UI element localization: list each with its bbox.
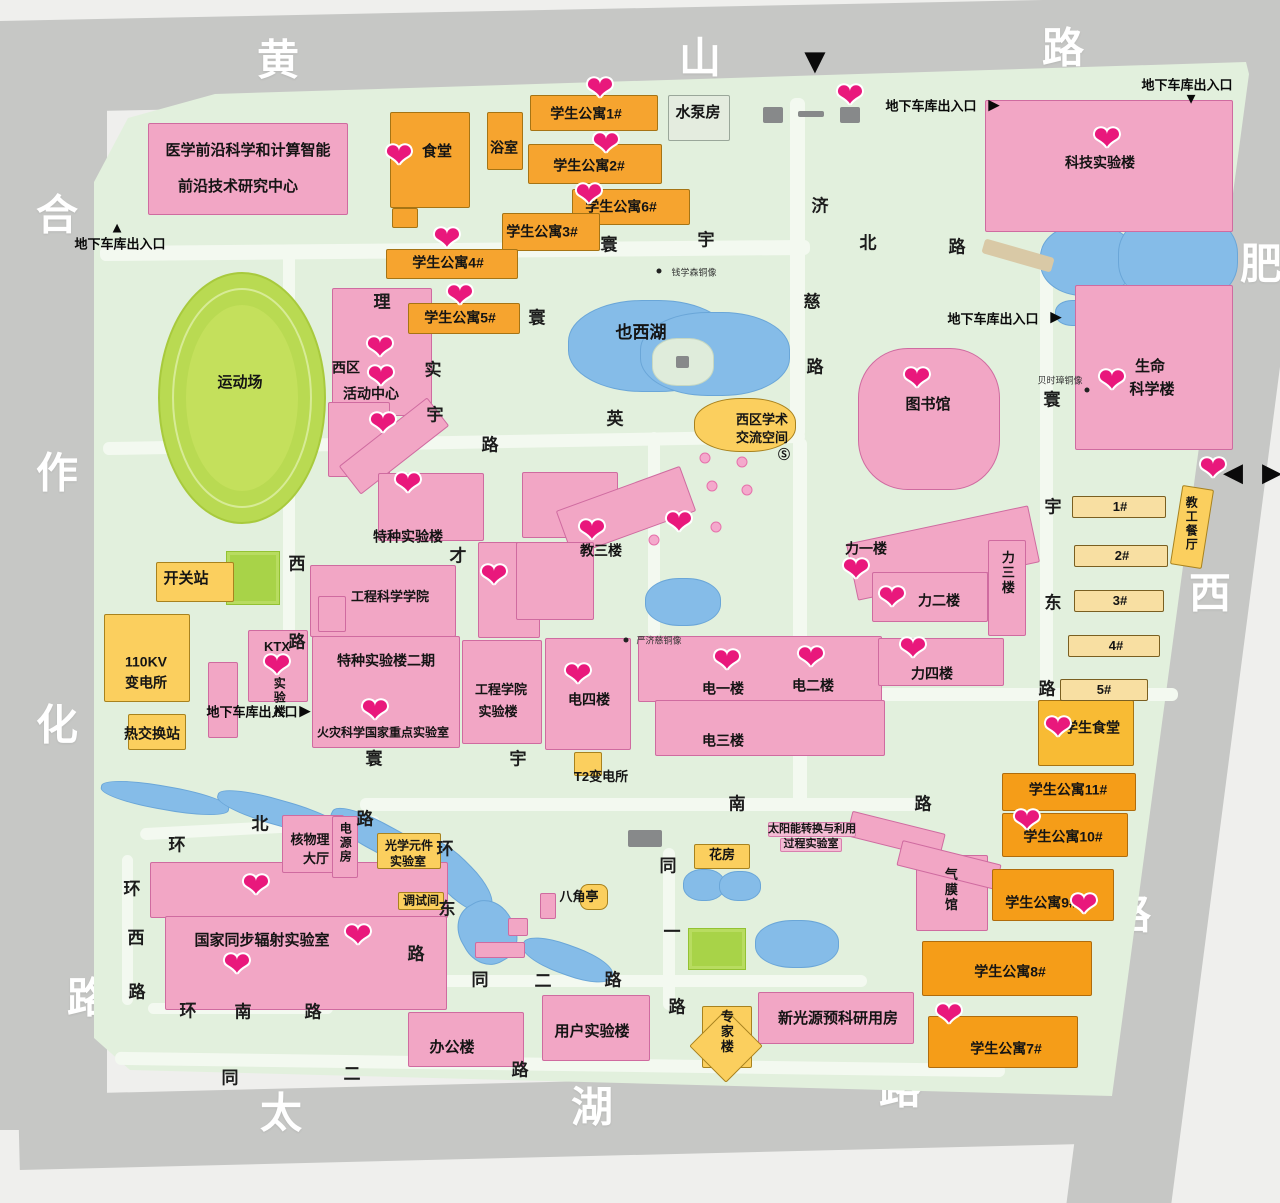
heart-marker-icon: ❤ — [263, 646, 291, 685]
heart-marker-icon: ❤ — [935, 995, 963, 1034]
heart-marker-icon: ❤ — [1093, 119, 1121, 158]
heart-marker-icon: ❤ — [1070, 885, 1098, 924]
heart-marker-icon: ❤ — [394, 464, 422, 503]
heart-marker-icon: ❤ — [836, 76, 864, 115]
heart-marker-icon: ❤ — [586, 69, 614, 108]
heart-marker-icon: ❤ — [223, 945, 251, 984]
heart-marker-icon: ❤ — [903, 359, 931, 398]
cherry-tree-icon — [711, 522, 722, 533]
garage-exit-arrow-icon: ▶ — [1050, 310, 1062, 325]
heart-marker-icon: ❤ — [797, 638, 825, 677]
garage-exit-arrow-icon: ▼ — [1184, 92, 1199, 107]
heart-marker-icon: ❤ — [899, 629, 927, 668]
garage-exit-label: 地下车库出入口 — [206, 702, 297, 721]
cherry-tree-icon — [649, 535, 660, 546]
markers-layer: 地下车库出入口▲地下车库出入口▶地下车库出入口▼地下车库出入口▶地下车库出入口▶… — [0, 0, 1280, 1203]
garage-exit-label: 地下车库出入口 — [947, 309, 1038, 328]
cherry-tree-icon — [700, 453, 711, 464]
garage-exit-arrow-icon: ▶ — [299, 704, 311, 719]
heart-marker-icon: ❤ — [578, 511, 606, 550]
cherry-tree-icon — [707, 481, 718, 492]
heart-marker-icon: ❤ — [446, 276, 474, 315]
heart-marker-icon: ❤ — [665, 503, 693, 542]
heart-marker-icon: ❤ — [713, 641, 741, 680]
heart-marker-icon: ❤ — [1044, 708, 1072, 747]
east-gate-icon-right: ▶ — [1262, 459, 1280, 485]
campus-map: 黄山路合作化路肥西路太湖路 运动场医学前沿科学和计算智能前沿技术研究中心科技实验… — [0, 0, 1280, 1203]
heart-marker-icon: ❤ — [344, 916, 372, 955]
heart-marker-icon: ❤ — [369, 404, 397, 443]
north-gate-icon: ▼ — [797, 43, 833, 79]
heart-marker-icon: ❤ — [385, 136, 413, 175]
garage-exit-arrow-icon: ▶ — [988, 98, 1000, 113]
cherry-tree-icon — [742, 485, 753, 496]
heart-marker-icon: ❤ — [1098, 361, 1126, 400]
heart-marker-icon: ❤ — [242, 866, 270, 905]
heart-marker-icon: ❤ — [878, 578, 906, 617]
cherry-tree-icon — [737, 457, 748, 468]
heart-marker-icon: ❤ — [433, 219, 461, 258]
heart-marker-icon: ❤ — [592, 124, 620, 163]
heart-marker-icon: ❤ — [480, 556, 508, 595]
heart-marker-icon: ❤ — [564, 655, 592, 694]
heart-marker-icon: ❤ — [1199, 449, 1227, 488]
heart-marker-icon: ❤ — [842, 550, 870, 589]
heart-marker-icon: ❤ — [1013, 801, 1041, 840]
garage-exit-label: 地下车库出入口 — [885, 96, 976, 115]
garage-exit-arrow-icon: ▲ — [110, 221, 125, 236]
heart-marker-icon: ❤ — [361, 691, 389, 730]
heart-marker-icon: ❤ — [575, 175, 603, 214]
heart-marker-icon: ❤ — [367, 357, 395, 396]
